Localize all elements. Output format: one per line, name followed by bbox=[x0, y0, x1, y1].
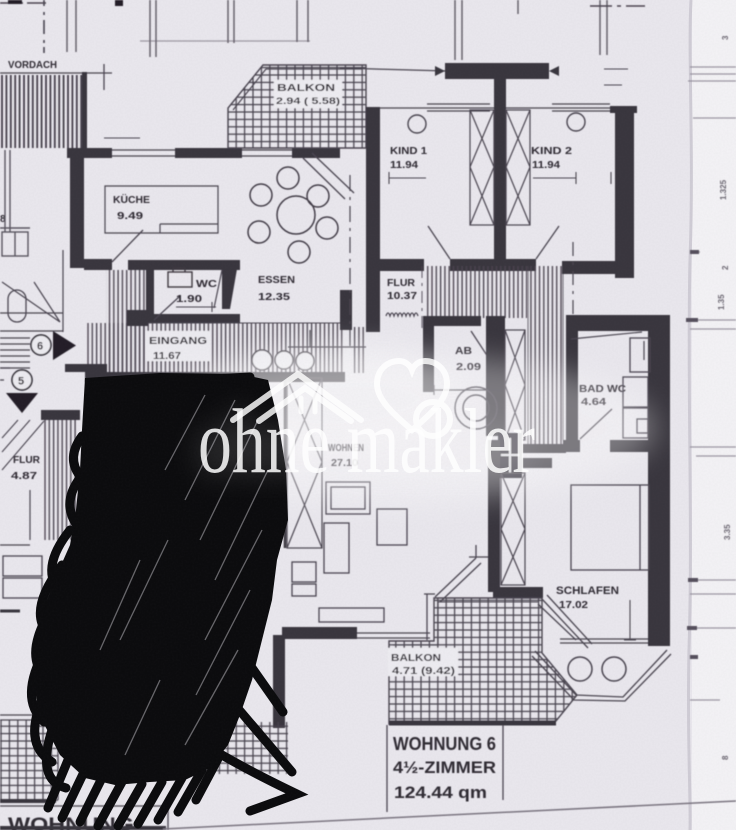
svg-text:ohne makler: ohne makler bbox=[198, 390, 535, 492]
